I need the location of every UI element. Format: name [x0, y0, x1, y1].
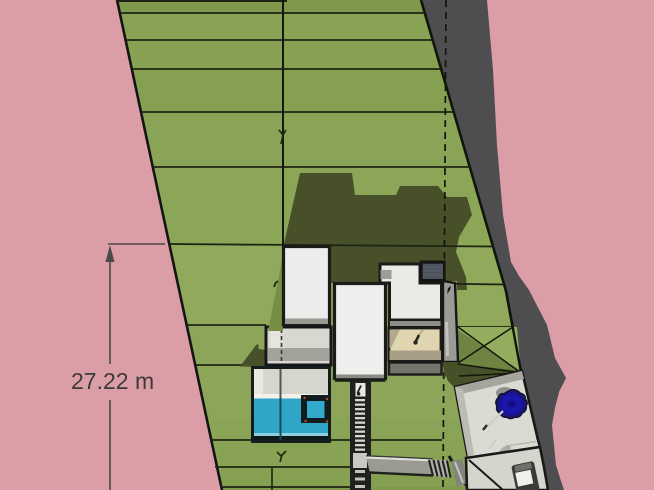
svg-text:27.22 m: 27.22 m: [71, 368, 154, 394]
